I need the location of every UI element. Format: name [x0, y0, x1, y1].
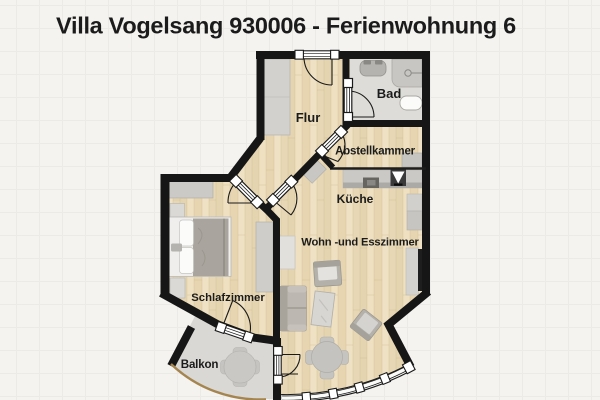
svg-text:Wohn -und Esszimmer: Wohn -und Esszimmer	[301, 237, 419, 249]
svg-text:Abstellkammer: Abstellkammer	[335, 146, 416, 158]
svg-text:Schlafzimmer: Schlafzimmer	[191, 292, 265, 304]
svg-text:Flur: Flur	[296, 110, 321, 125]
svg-text:Villa Vogelsang 930006 - Ferie: Villa Vogelsang 930006 - Ferienwohnung 6	[56, 13, 516, 39]
svg-text:Küche: Küche	[337, 192, 374, 206]
svg-text:Balkon: Balkon	[181, 358, 219, 371]
svg-text:Bad: Bad	[377, 86, 402, 101]
